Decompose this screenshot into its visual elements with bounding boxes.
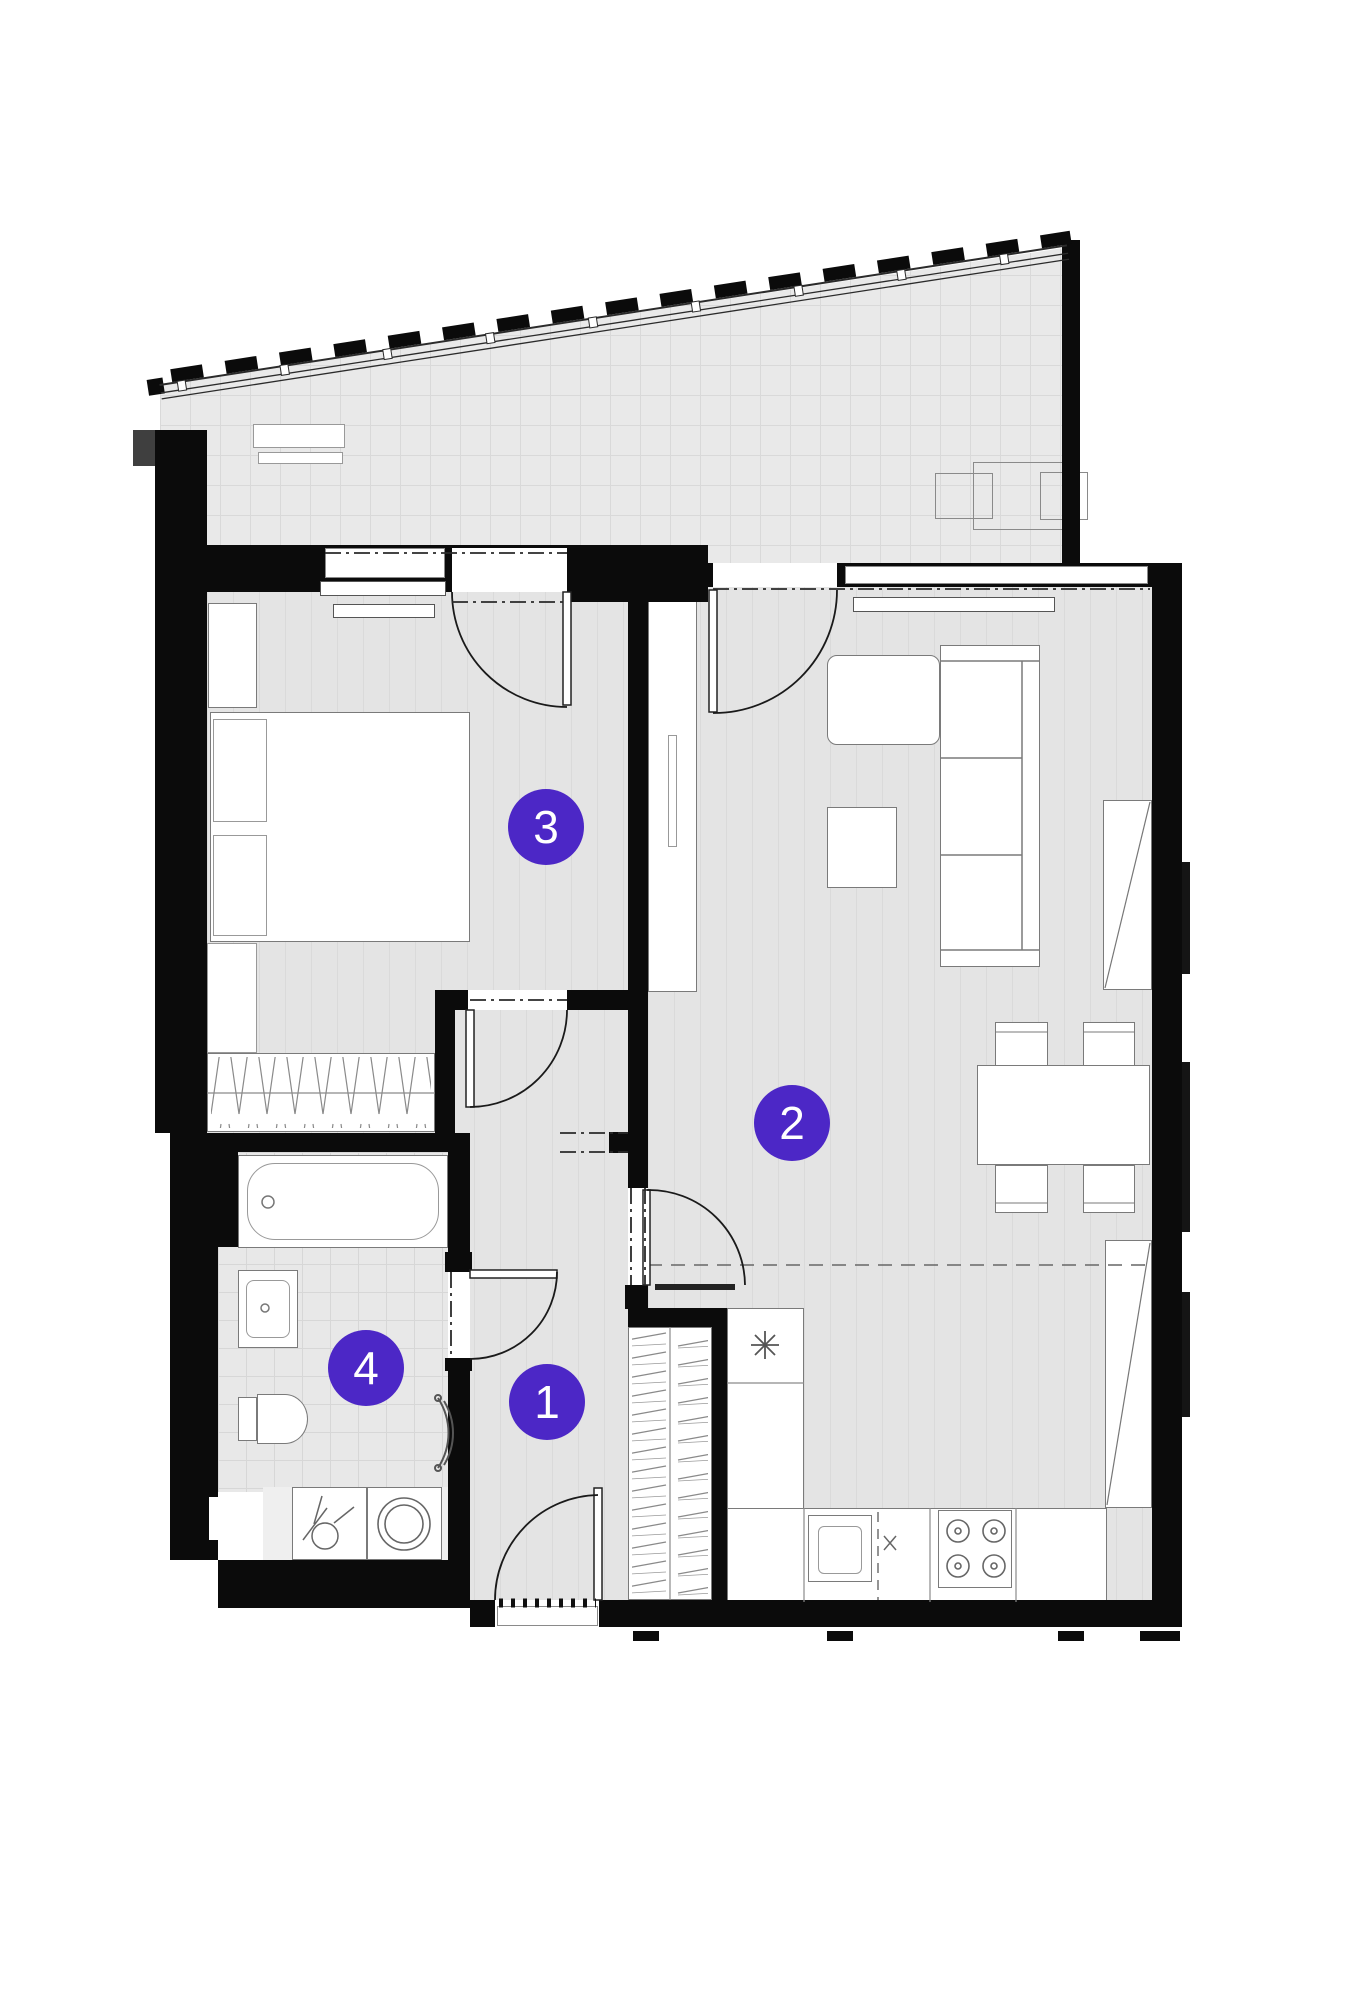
balcony-railing [146,231,1074,401]
bedroom-balcony-door-leaf [563,592,571,705]
fridge-diagonal [1107,1243,1150,1505]
entrance-door-leaf [594,1488,602,1600]
room-number: 1 [534,1375,560,1429]
kitchen-divisions [727,1383,1016,1602]
kitchen-door-leaf [643,1190,650,1285]
boiler-icon [751,1331,779,1359]
room-number: 2 [779,1096,805,1150]
room-badge-bathroom: 4 [328,1330,404,1406]
bathroom-door-arc [470,1272,557,1359]
kitchen-door-threshold [655,1284,735,1290]
room-badge-bedroom: 3 [508,789,584,865]
floor-plan: 1 2 3 4 [0,0,1352,2013]
towel-radiator [435,1395,453,1471]
plan-linework [0,0,1352,2013]
centerlines [325,553,1150,1358]
sofa-lines [940,661,1040,950]
cooktop-burners [947,1520,1005,1577]
entrance-door-arc [495,1495,598,1600]
hall-closet-hatch [632,1327,708,1600]
washing-machine-drum [378,1498,430,1550]
room-number: 4 [353,1341,379,1395]
sink-drain [261,1304,269,1312]
bathroom-door-leaf [470,1270,557,1278]
chair-lines [995,1032,1135,1203]
room-badge-living-kitchen: 2 [754,1085,830,1161]
laundry-sink-icon [303,1496,354,1549]
kitchen-faucet-icon [884,1536,896,1550]
kitchen-door-arc [647,1190,745,1285]
bedroom-hall-door-leaf [466,1010,474,1107]
room-badge-hallway: 1 [509,1364,585,1440]
tall-cabinet-diagonal [1105,802,1150,988]
bedroom-hall-door-arc [470,1010,567,1107]
bedroom-balcony-door-arc [452,592,567,707]
bathtub-drain [262,1196,274,1208]
room-number: 3 [533,800,559,854]
living-balcony-door-leaf [709,590,717,712]
bedroom-wardrobe-hatch [207,1057,435,1128]
living-balcony-door-arc [713,590,837,713]
